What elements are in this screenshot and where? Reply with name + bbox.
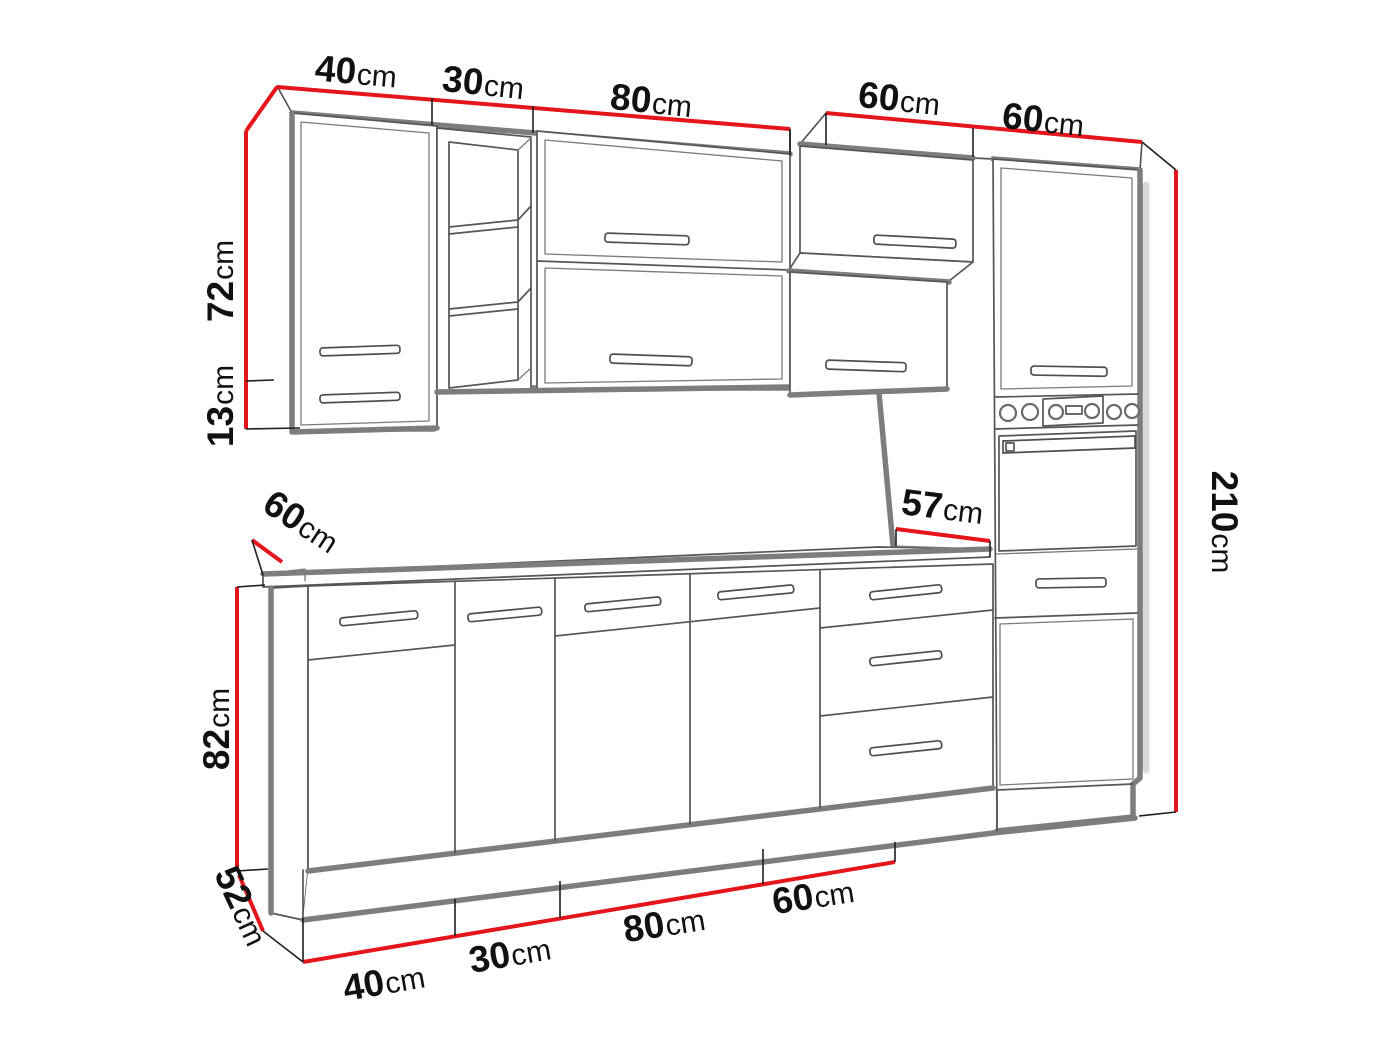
- dim-label-210: 210cm: [1204, 471, 1245, 574]
- door-handle-upper: [605, 233, 689, 245]
- dim-label-top-80: 80cm: [608, 76, 694, 125]
- dim-label-top-60a: 60cm: [856, 74, 942, 123]
- kitchen-dimension-diagram: 40cm 30cm 80cm 60cm 60cm 72cm 13cm 82cm …: [0, 0, 1385, 1039]
- backsplash-panel-face: [420, 388, 893, 567]
- tick-210-top: [1142, 142, 1176, 170]
- dim-label-82: 82cm: [196, 688, 237, 770]
- open-shelf-unit-30: [437, 128, 531, 393]
- wall-cabinet-40: [292, 113, 437, 432]
- hood-upper-cabinet-60: [789, 146, 973, 282]
- dim-line-top-corner: [246, 87, 277, 131]
- dim-label-72: 72cm: [200, 240, 241, 322]
- oven-knob-3: [1049, 405, 1063, 419]
- dim-label-top-60b: 60cm: [1000, 95, 1086, 144]
- upper-door-handle: [1031, 366, 1107, 376]
- door-handle-lower: [610, 354, 692, 366]
- tick-210-bottom: [1139, 812, 1176, 816]
- dim-label-top-40: 40cm: [313, 48, 398, 96]
- tick-82-top: [237, 585, 265, 587]
- oven-knob-5: [1107, 405, 1121, 419]
- hood-lower-cabinet: [790, 272, 947, 395]
- door-handle-lower: [320, 392, 400, 403]
- cabinet-face: [993, 159, 1140, 831]
- tall-oven-cabinet-60: [993, 159, 1146, 831]
- dim-label-bottom-30: 30cm: [466, 926, 554, 981]
- dim-line-60-depth: [252, 540, 282, 562]
- wall-cabinet-80: [537, 131, 790, 391]
- cabinet-face: [790, 272, 947, 395]
- dim-label-60-depth: 60cm: [256, 482, 347, 561]
- dim-label-52: 52cm: [206, 860, 278, 952]
- door-handle: [826, 360, 906, 372]
- dim-label-13: 13cm: [200, 365, 241, 447]
- dim-label-bottom-40: 40cm: [340, 954, 428, 1009]
- lower-drawer-handle: [1036, 578, 1106, 588]
- shelf-frame: [437, 128, 531, 393]
- wall-cabinet-run: [277, 86, 790, 432]
- cabinet-face: [292, 113, 437, 432]
- door-handle-upper: [320, 345, 400, 356]
- oven-knob-2: [1022, 404, 1038, 420]
- tick-72-13: [246, 380, 274, 381]
- dim-label-57: 57cm: [899, 481, 986, 532]
- oven-knob-4: [1085, 404, 1099, 418]
- dim-line-57: [896, 529, 990, 541]
- oven-knob-1: [1000, 405, 1016, 421]
- backsplash-panel: [380, 388, 893, 567]
- dim-label-top-30: 30cm: [440, 58, 526, 107]
- tick-13-end: [246, 428, 300, 429]
- oven-knob-6: [1125, 404, 1139, 418]
